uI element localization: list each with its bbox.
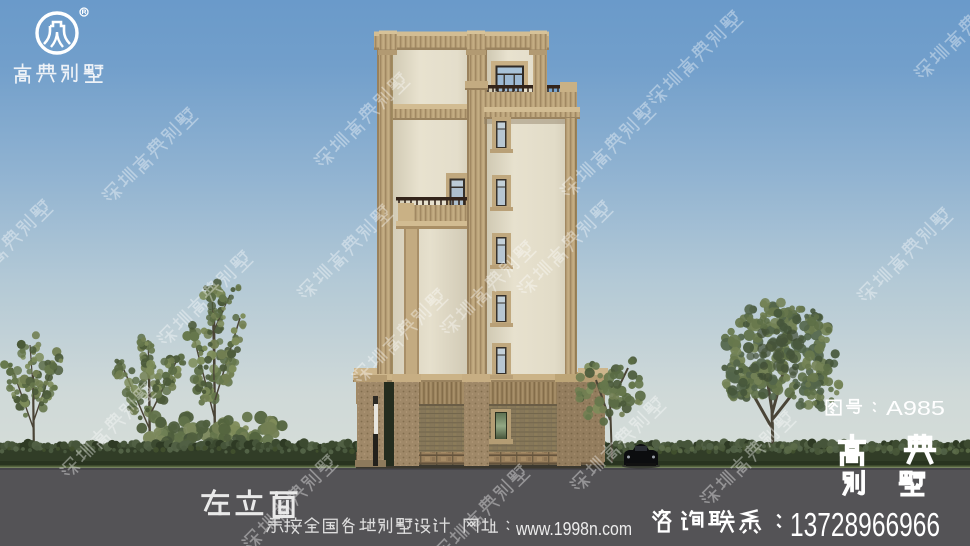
svg-text:13728966966: 13728966966 <box>790 506 940 543</box>
svg-text:A985: A985 <box>886 397 945 420</box>
svg-text:www.1998n.com: www.1998n.com <box>515 518 632 539</box>
